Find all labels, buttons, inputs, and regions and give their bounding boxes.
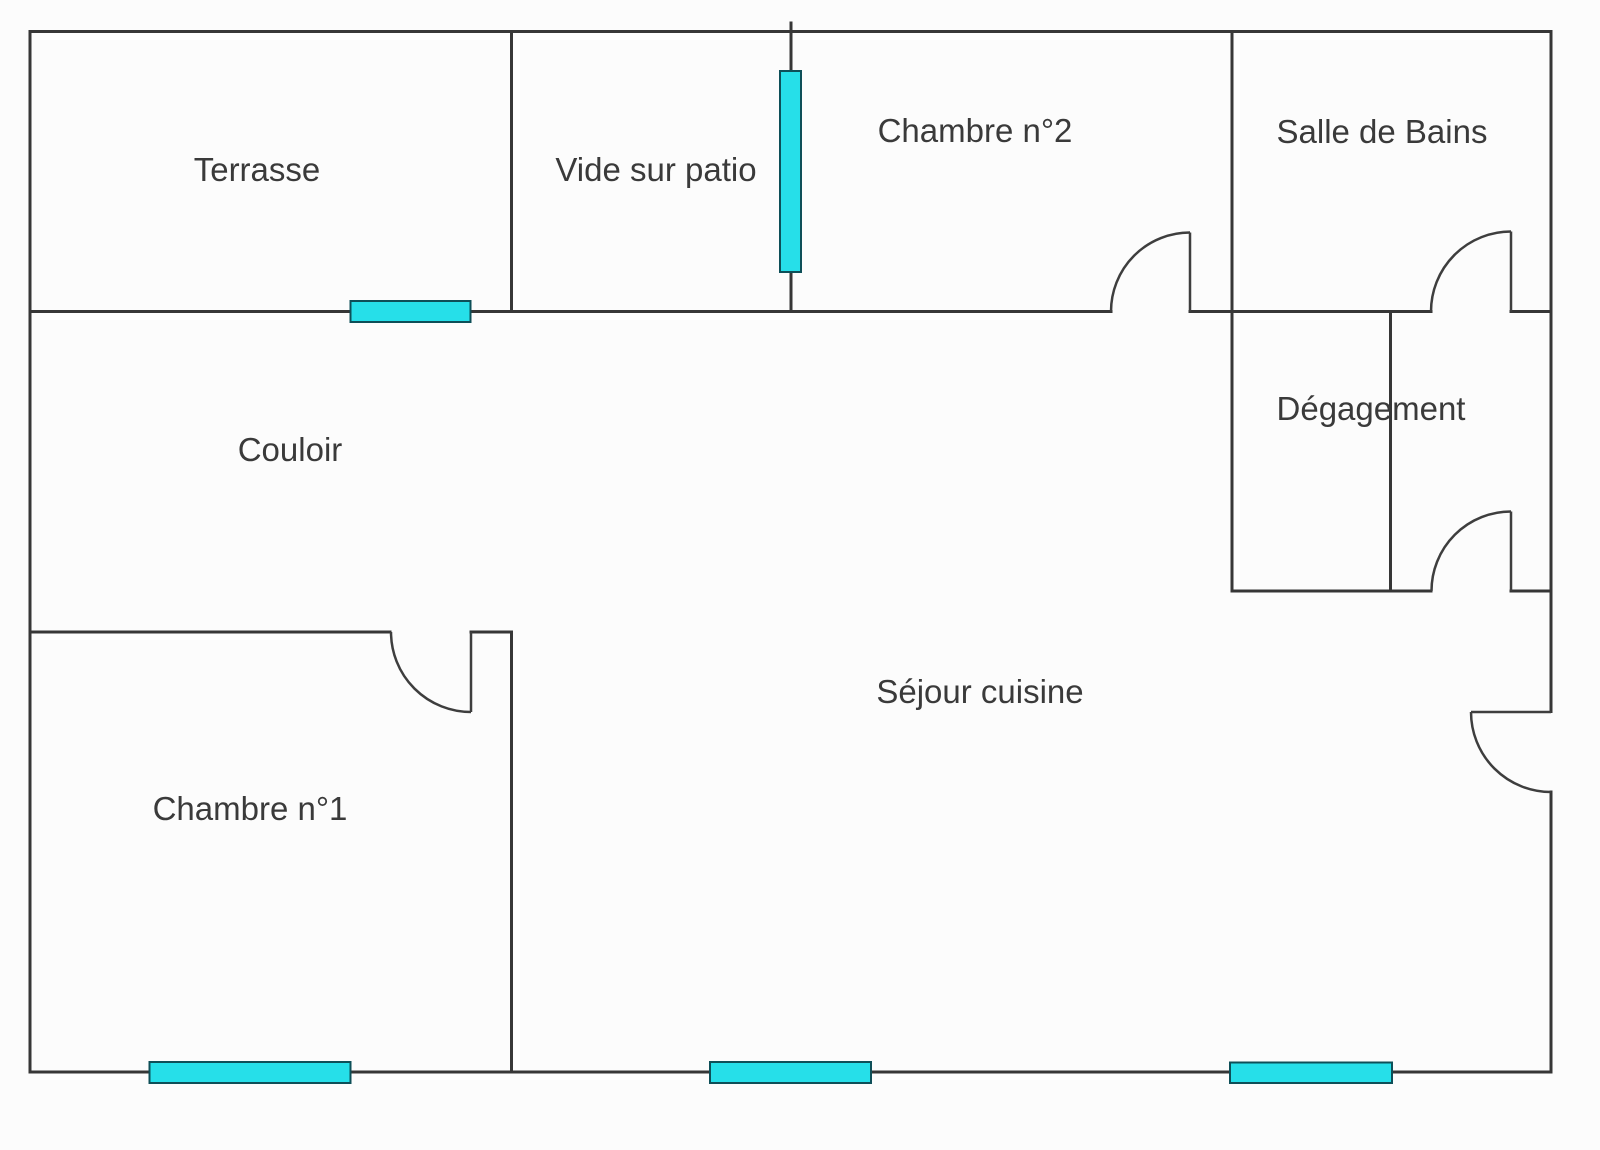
svg-text:Chambre n°2: Chambre n°2 — [878, 112, 1073, 149]
svg-text:Salle de Bains: Salle de Bains — [1277, 113, 1488, 150]
svg-text:Dégagement: Dégagement — [1277, 390, 1466, 427]
svg-text:Vide sur patio: Vide sur patio — [555, 151, 756, 188]
svg-text:Chambre n°1: Chambre n°1 — [153, 790, 348, 827]
svg-text:Séjour cuisine: Séjour cuisine — [876, 673, 1083, 710]
svg-text:Couloir: Couloir — [238, 431, 343, 468]
svg-text:Terrasse: Terrasse — [194, 151, 321, 188]
